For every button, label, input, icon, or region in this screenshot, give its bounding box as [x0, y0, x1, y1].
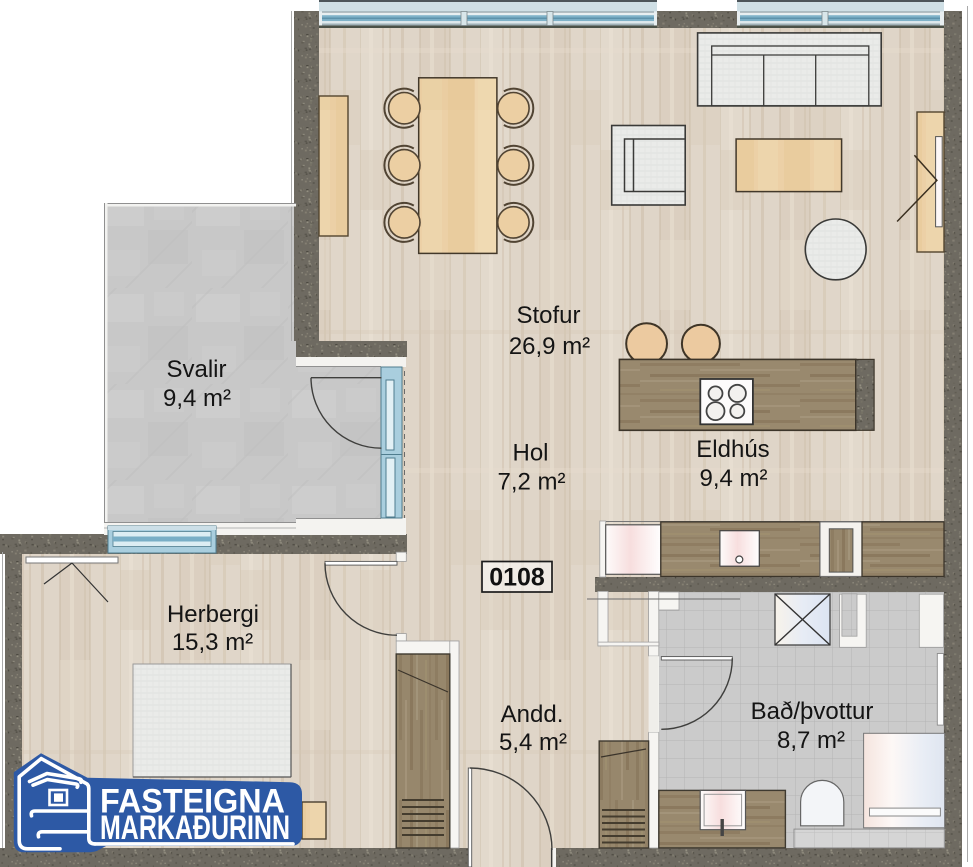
- svg-text:9,4 m²: 9,4 m²: [163, 385, 231, 412]
- svg-text:0108: 0108: [489, 564, 545, 592]
- svg-text:9,4 m²: 9,4 m²: [699, 465, 767, 492]
- svg-text:MARKAÐURINN: MARKAÐURINN: [100, 809, 290, 847]
- svg-text:Svalir: Svalir: [166, 356, 226, 383]
- svg-text:Andd.: Andd.: [501, 701, 564, 728]
- svg-text:Hol: Hol: [512, 440, 548, 467]
- svg-text:Stofur: Stofur: [516, 302, 580, 329]
- svg-text:Eldhús: Eldhús: [696, 436, 769, 463]
- svg-text:Herbergi: Herbergi: [167, 601, 259, 628]
- svg-text:5,4 m²: 5,4 m²: [499, 729, 567, 756]
- svg-text:7,2 m²: 7,2 m²: [497, 469, 565, 496]
- svg-text:26,9 m²: 26,9 m²: [509, 333, 590, 360]
- svg-text:15,3 m²: 15,3 m²: [172, 629, 253, 656]
- svg-text:Bað/þvottur: Bað/þvottur: [751, 698, 874, 725]
- svg-text:8,7 m²: 8,7 m²: [777, 727, 845, 754]
